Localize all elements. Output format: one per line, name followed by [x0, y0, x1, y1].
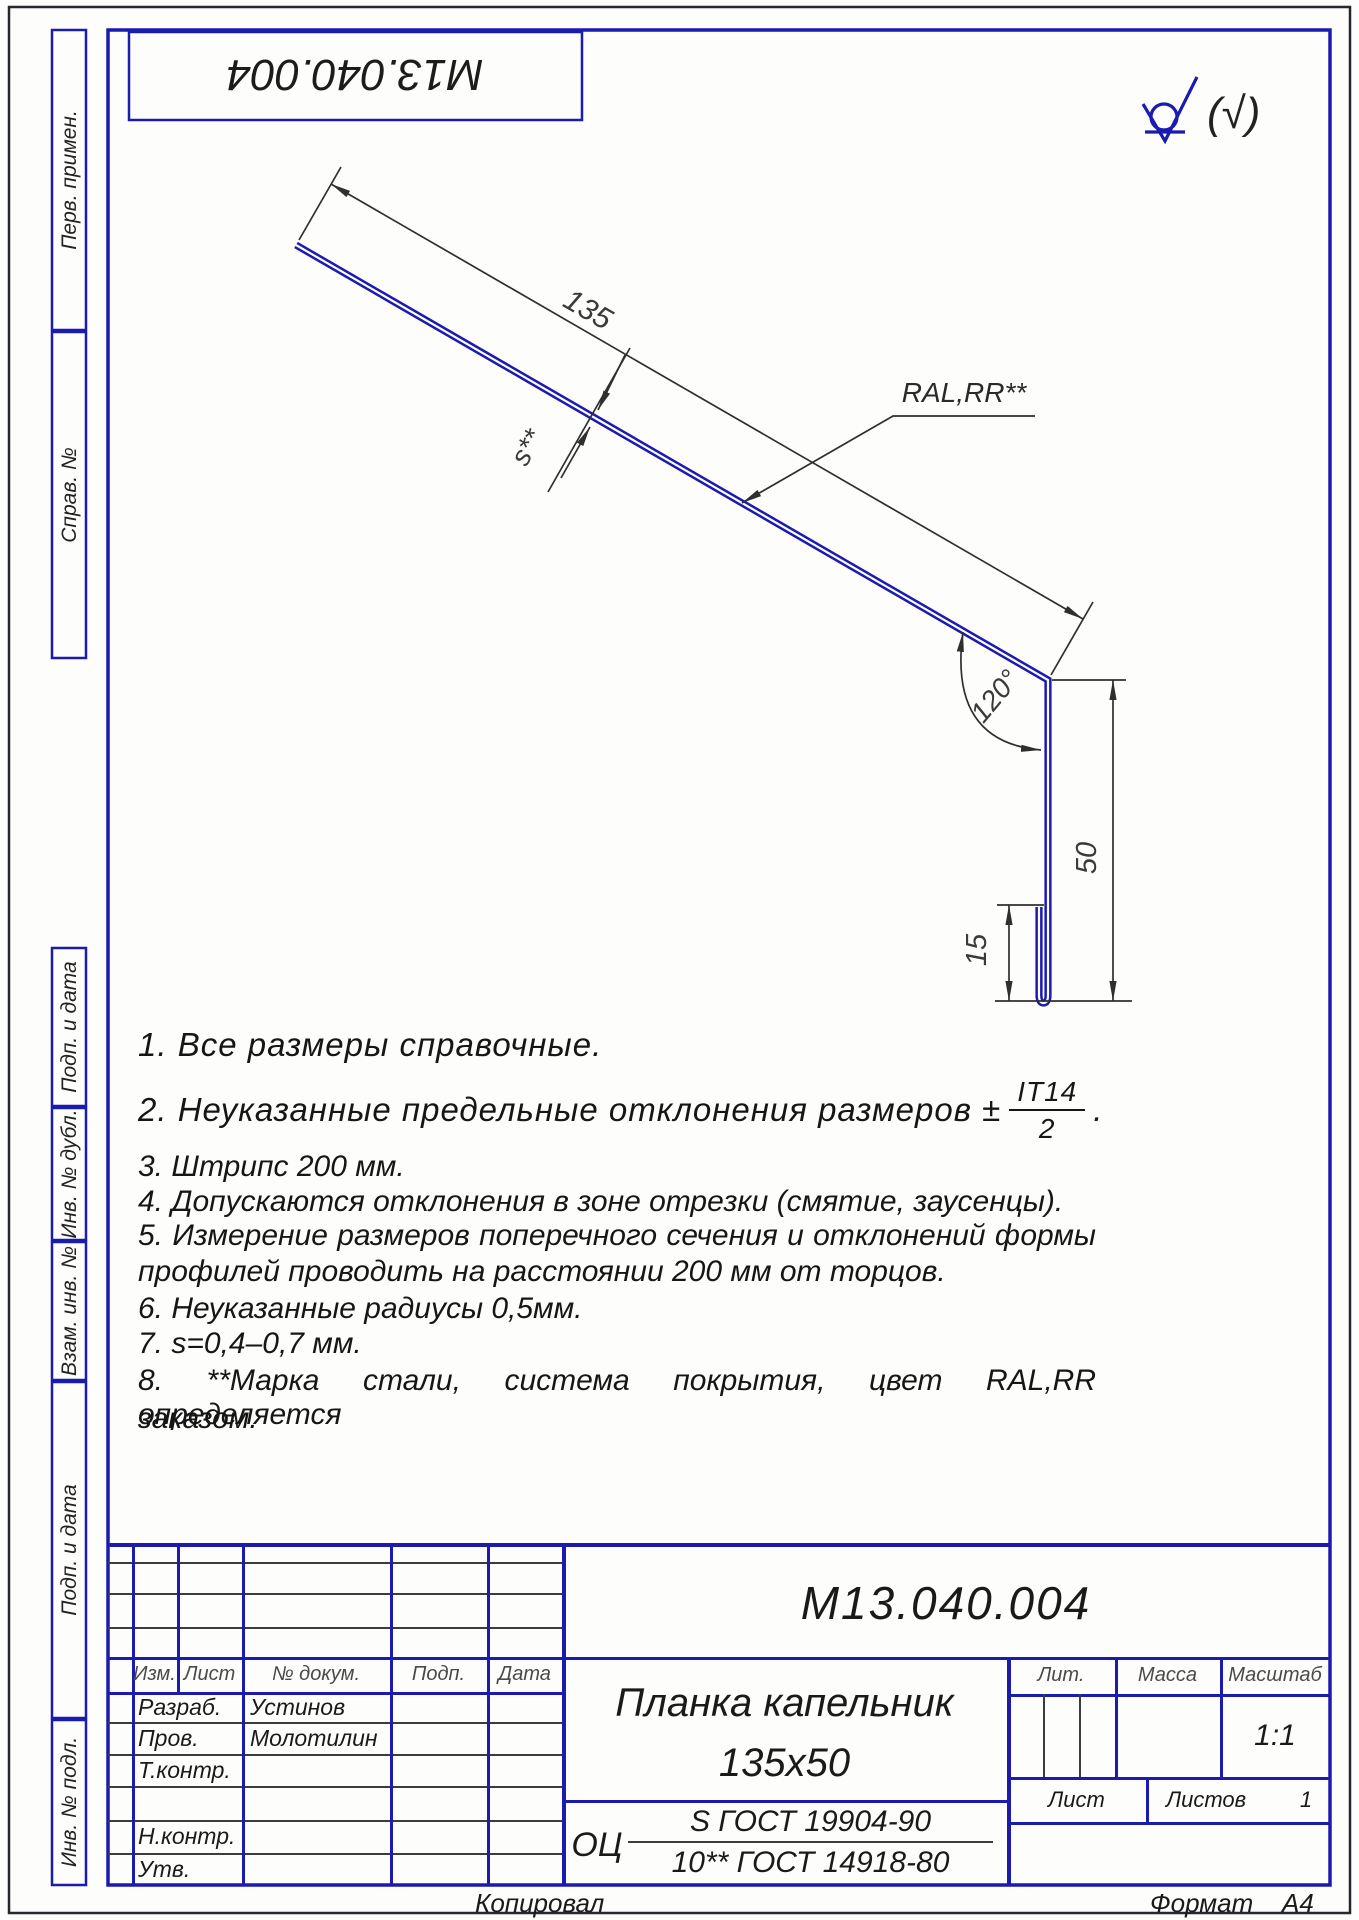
profile-core-gap: [296, 245, 1048, 1003]
tb-part-name-line2: 135х50: [562, 1733, 1007, 1793]
coating-leader-line: [742, 416, 1035, 503]
dim-s-arrow-low: [561, 427, 590, 478]
note-2: 2. Неуказанные предельные отклонения раз…: [138, 1074, 1103, 1146]
dim-50: [995, 680, 1132, 1001]
footer-format-value: А4: [1282, 1888, 1314, 1919]
tb-col-sign: Подп.: [390, 1657, 487, 1692]
margin-label-podp-data-2: Подп. и дата: [58, 1484, 81, 1615]
note-2-text: 2. Неуказанные предельные отклонения раз…: [138, 1091, 1001, 1129]
tb-listov-value: 1: [1288, 1777, 1324, 1822]
tb-row-utv: Утв.: [138, 1853, 248, 1885]
note-3: 3. Штрипс 200 мм.: [138, 1150, 405, 1184]
tb-v-doc: [390, 1545, 393, 1885]
margin-label-inv-podl: Инв. № подл.: [58, 1737, 81, 1867]
dim-135-ext-1: [299, 167, 341, 240]
note-5-line-1: 5. Измерение размеров поперечного сечени…: [138, 1219, 1096, 1253]
tb-v-lit-sub1: [1043, 1694, 1045, 1777]
coating-label: RAL,RR**: [902, 377, 1028, 408]
tb-material-prefix: ОЦ: [566, 1821, 628, 1869]
tb-part-name-line1: Планка капельник: [562, 1673, 1007, 1733]
margin-label-perv-primen: Перв. примен.: [58, 110, 81, 250]
tb-massa-label: Масса: [1115, 1657, 1220, 1694]
note-2-fraction-numerator: IT14: [1009, 1077, 1085, 1111]
dim-135-label: 135: [558, 283, 618, 337]
note-1: 1. Все размеры справочные.: [138, 1026, 602, 1064]
dim-50-label: 50: [1071, 842, 1103, 874]
tb-col-list: Лист: [177, 1657, 242, 1692]
title-block: М13.040.004 Изм. Лист № докум. Подп. Дат…: [108, 1545, 1330, 1885]
tb-prov-name: Молотилин: [250, 1722, 390, 1754]
margin-label-sprav-no: Справ. №: [58, 447, 81, 542]
note-8-line-2: заказом.: [138, 1402, 258, 1436]
margin-label-vzam-inv: Взам. инв. №: [58, 1246, 81, 1376]
tb-line-list-bottom: [1007, 1822, 1330, 1825]
note-8-line-1: 8. **Марка стали, система покрытия, цвет…: [138, 1364, 1096, 1432]
dim-s-arrow-high: [598, 355, 625, 410]
tb-list-label: Лист: [1007, 1777, 1146, 1822]
note-2-fraction: IT14 2: [1009, 1077, 1085, 1144]
tb-row-line-3: [108, 1786, 562, 1788]
tb-col-date: Дата: [487, 1657, 562, 1692]
surface-rest-label: (√): [1207, 89, 1260, 138]
tb-listov-label: Листов: [1166, 1777, 1276, 1822]
footer-format-label: Формат: [1150, 1888, 1253, 1919]
tb-v-lit-sub2: [1079, 1694, 1081, 1777]
top-stamp-designation: М13.040.004: [227, 50, 484, 99]
tb-scale-value: 1:1: [1220, 1694, 1330, 1777]
tb-v-listov: [1146, 1777, 1149, 1822]
profile-geometry: [296, 245, 1048, 1003]
note-2-fraction-denominator: 2: [1039, 1111, 1056, 1143]
footer-copied-label: Копировал: [475, 1888, 604, 1919]
dim-angle-label: 120°: [964, 664, 1025, 728]
dim-15-label: 15: [961, 933, 993, 966]
tb-material-fraction-bar: [628, 1841, 993, 1843]
note-6: 6. Неуказанные радиусы 0,5мм.: [138, 1292, 583, 1326]
dim-135: [299, 167, 1093, 675]
dim-thickness: [548, 348, 630, 492]
margin-label-podp-data-1: Подп. и дата: [58, 961, 81, 1092]
tb-col-doc: № докум.: [242, 1657, 390, 1692]
tb-v-sign: [487, 1545, 490, 1885]
tb-v-form-edge: [132, 1545, 135, 1885]
surface-finish-symbol: [1143, 77, 1197, 141]
tb-row-prov: Пров.: [138, 1722, 248, 1754]
note-5-line-2: профилей проводить на расстоянии 200 мм …: [138, 1255, 946, 1289]
margin-label-inv-dubl: Инв. № дубл.: [58, 1109, 81, 1238]
tb-top-line: [108, 1543, 1330, 1547]
tb-razrab-name: Устинов: [250, 1692, 390, 1722]
note-7: 7. s=0,4–0,7 мм.: [138, 1327, 362, 1361]
tb-row-nkontr: Н.контр.: [138, 1820, 248, 1853]
dim-s-label: s**: [504, 423, 549, 470]
tb-material-denominator: 10** ГОСТ 14918-80: [628, 1844, 993, 1882]
tb-material-numerator: S ГОСТ 19904-90: [628, 1803, 993, 1841]
tb-row-razrab: Разраб.: [138, 1692, 248, 1722]
profile-outline: [296, 245, 1048, 1003]
left-margin-labels: Перв. примен. Справ. № Подп. и дата Инв.…: [58, 110, 81, 1867]
drawing-sheet: М13.040.004 Перв. примен. Справ. № Подп.…: [0, 0, 1359, 1920]
tb-row-tkontr: Т.контр.: [138, 1754, 248, 1786]
tb-designation: М13.040.004: [562, 1551, 1330, 1655]
note-4: 4. Допускаются отклонения в зоне отрезки…: [138, 1185, 1063, 1219]
tb-masshtab-label: Масштаб: [1220, 1657, 1330, 1694]
note-2-period: .: [1093, 1091, 1103, 1129]
tb-col-izm: Изм.: [132, 1657, 177, 1692]
surface-circle-icon: [1151, 104, 1177, 130]
tb-lit-label: Лит.: [1007, 1657, 1115, 1694]
